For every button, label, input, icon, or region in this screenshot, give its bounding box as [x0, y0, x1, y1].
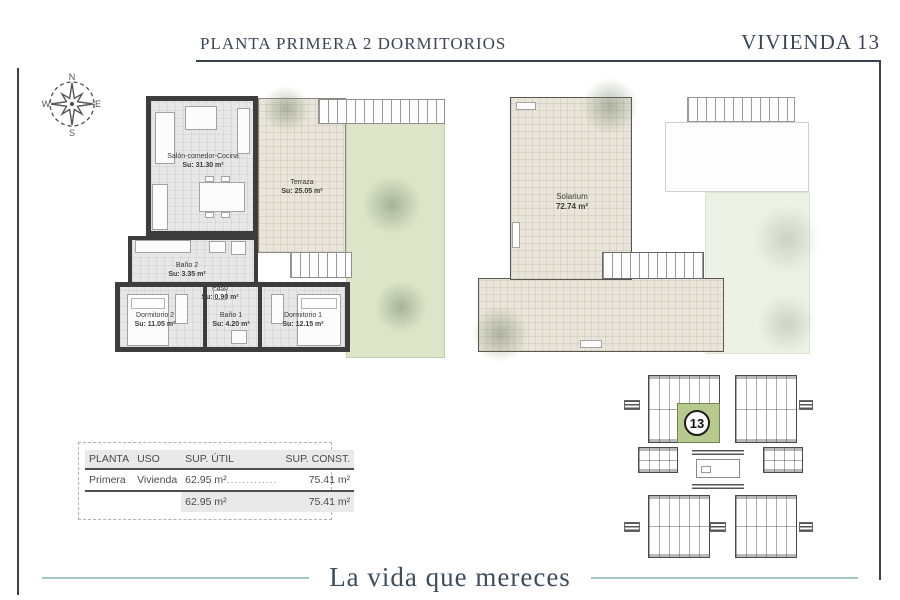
tagline: La vida que mereces [329, 562, 571, 593]
bath2-sink [209, 241, 226, 253]
chair [221, 212, 230, 218]
site-block-ml [638, 447, 678, 473]
tree-icon [375, 281, 427, 333]
table-header-sup-const: SUP. CONST. [282, 450, 355, 469]
palm-tree-icon [472, 306, 528, 362]
roof-vent [580, 340, 602, 348]
walkway-hatch [799, 400, 813, 410]
pool-steps [701, 466, 711, 473]
floor-plan: Salón-comedor-CocinaSu: 31.30 m² Terraza… [113, 86, 445, 372]
kitchen-counter [152, 184, 168, 230]
sunbeds-row [692, 448, 744, 455]
table-header-sup-util: SUP. ÚTIL [181, 450, 281, 469]
compass-n-label: N [69, 72, 76, 82]
cell-sup-const: 75.41 m² [282, 469, 355, 491]
frame-right [879, 60, 881, 580]
frame-left [17, 68, 19, 595]
sunbeds-row [692, 482, 744, 489]
areas-table: PLANTA USO SUP. ÚTIL SUP. CONST. Primera… [78, 442, 332, 520]
footer: La vida que mereces [42, 562, 858, 593]
palm-tree-icon [582, 78, 638, 134]
tree-icon [757, 294, 817, 354]
kitchen-counter-low [135, 240, 191, 253]
room-label-bano2: Baño 2Su: 3.35 m² [161, 261, 213, 279]
site-block-tr [735, 375, 797, 443]
total-sup-const: 75.41 m² [282, 491, 355, 512]
stairs-terrace [290, 252, 352, 278]
cell-sup-util: 62.95 m²............. [181, 469, 281, 491]
walkway-hatch [624, 522, 640, 532]
walkway-hatch [710, 522, 726, 532]
room-label-living: Salón-comedor-CocinaSu: 31.30 m² [158, 152, 248, 170]
walkway-hatch [624, 400, 640, 410]
tv-cabinet [237, 108, 250, 154]
table-row: Primera Vivienda 62.95 m²............. 7… [85, 469, 354, 491]
tagline-rule-left [42, 577, 309, 579]
compass-rose-icon: N E S W [42, 70, 102, 138]
wall-divider [258, 286, 262, 348]
roof-area [665, 122, 809, 192]
site-plan: 13 [622, 372, 850, 564]
unit-number-badge: 13 [684, 410, 710, 436]
chair [205, 212, 214, 218]
cell-planta: Primera [85, 469, 133, 491]
site-block-mr [763, 447, 803, 473]
tagline-rule-right [591, 577, 858, 579]
stairs [602, 252, 704, 279]
table-header-uso: USO [133, 450, 181, 469]
compass-s-label: S [69, 128, 75, 138]
room-label-terraza: TerrazaSu: 25.05 m² [260, 178, 344, 196]
compass-e-label: E [95, 99, 101, 109]
room-label-paso: PasoSu: 0.90 m² [197, 284, 243, 302]
palm-tree-icon [263, 86, 309, 132]
roof-vent [512, 222, 520, 248]
stairs-top [318, 99, 445, 124]
dwelling-title: VIVIENDA 13 [741, 30, 880, 55]
brochure-page: PLANTA PRIMERA 2 DORMITORIOS VIVIENDA 13… [0, 0, 900, 600]
room-label-bano1: Baño 1Su: 4.20 m² [207, 311, 255, 329]
page-title: PLANTA PRIMERA 2 DORMITORIOS [200, 34, 506, 54]
header-rule [196, 60, 881, 62]
site-block-bl [648, 495, 710, 558]
tree-icon [752, 204, 822, 274]
walkway-hatch [799, 522, 813, 532]
solarium-plan: Solarium72.74 m² [462, 84, 854, 376]
room-label-solarium: Solarium72.74 m² [522, 192, 622, 213]
roof-vent [516, 102, 536, 110]
room-label-dorm2: Dormitorio 2Su: 11.05 m² [123, 311, 187, 329]
dot-leader: ............. [227, 474, 278, 486]
pergola-hatch [687, 97, 795, 122]
dining-table [199, 182, 245, 212]
site-block-br [735, 495, 797, 558]
chair [221, 176, 230, 182]
compass-w-label: W [42, 99, 51, 109]
bath2-toilet [231, 241, 246, 255]
total-sup-util: 62.95 m² [181, 491, 281, 512]
chair [205, 176, 214, 182]
bath1-toilet [231, 330, 247, 344]
table-totals-row: 62.95 m² 75.41 m² [85, 491, 354, 512]
cell-uso: Vivienda [133, 469, 181, 491]
pool [696, 459, 740, 478]
room-label-dorm1: Dormitorio 1Su: 12.15 m² [271, 311, 335, 329]
coffee-table [185, 106, 217, 130]
table-header-planta: PLANTA [85, 450, 133, 469]
tree-icon [363, 176, 421, 234]
